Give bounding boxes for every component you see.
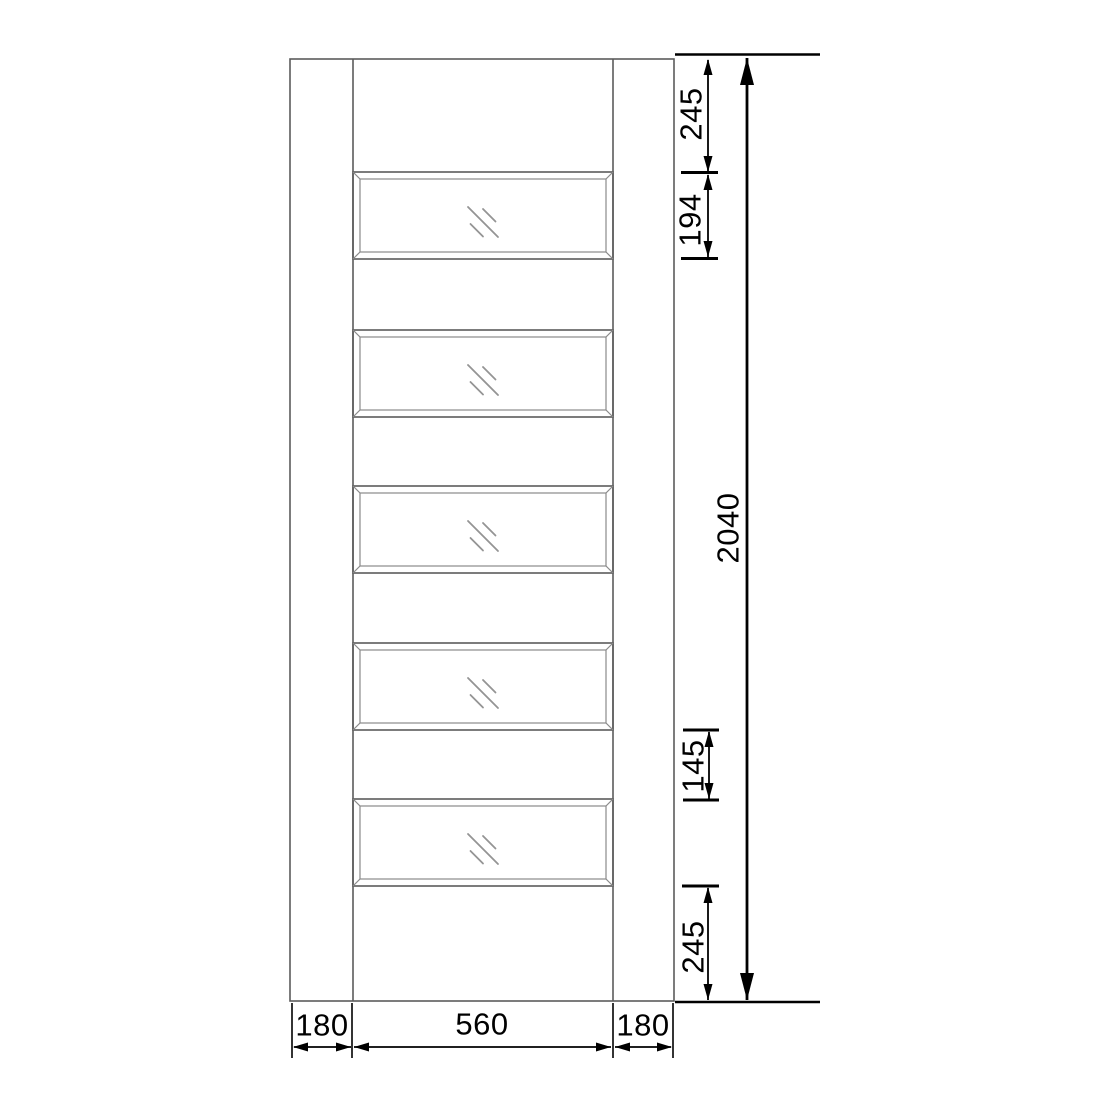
bevel-corner-icon	[606, 252, 613, 259]
panel-bevel-lines	[353, 172, 613, 259]
bevel-corner-icon	[606, 172, 613, 179]
dim-label-top-rail: 245	[676, 87, 707, 140]
arrow-up-icon	[740, 58, 754, 85]
arrow-left-icon	[354, 1043, 369, 1052]
panel-outer-frame	[353, 486, 613, 573]
bevel-corner-icon	[353, 566, 360, 573]
bevel-corner-icon	[353, 252, 360, 259]
arrow-right-icon	[336, 1043, 351, 1052]
glazing-mark-icon	[468, 521, 498, 551]
arrow-up-icon	[704, 59, 713, 75]
door-drawing-svg	[0, 0, 1100, 1100]
dim-label-mid-rail: 145	[678, 739, 709, 792]
panel-inner-frame	[360, 650, 606, 723]
glazed-panel-1	[353, 172, 613, 259]
glazed-panel-2	[353, 330, 613, 417]
bevel-corner-icon	[606, 410, 613, 417]
panel-bevel-lines	[353, 643, 613, 730]
panel-bevel-lines	[353, 486, 613, 573]
arrow-down-icon	[704, 984, 713, 1000]
dim-label-glazing-width: 560	[455, 1009, 508, 1040]
arrow-up-icon	[704, 174, 713, 190]
arrow-left-icon	[615, 1043, 630, 1052]
panel-outer-frame	[353, 799, 613, 886]
arrow-down-icon	[704, 156, 713, 172]
bevel-corner-icon	[353, 643, 360, 650]
panel-inner-frame	[360, 806, 606, 879]
dim-label-left-stile: 180	[295, 1010, 348, 1041]
bevel-corner-icon	[606, 486, 613, 493]
bevel-corner-icon	[606, 723, 613, 730]
bevel-corner-icon	[353, 172, 360, 179]
arrow-up-icon	[704, 887, 713, 903]
glazing-mark-icon	[468, 678, 498, 708]
panel-inner-frame	[360, 337, 606, 410]
arrow-down-icon	[740, 973, 754, 1000]
glazing-mark-icon	[468, 207, 498, 237]
panel-inner-frame	[360, 493, 606, 566]
glazing-mark-icon	[468, 834, 498, 864]
bevel-corner-icon	[353, 410, 360, 417]
glazing-mark-icon	[468, 365, 498, 395]
bevel-corner-icon	[606, 879, 613, 886]
glazed-panel-4	[353, 643, 613, 730]
arrow-left-icon	[293, 1043, 308, 1052]
panel-outer-frame	[353, 643, 613, 730]
bevel-corner-icon	[606, 643, 613, 650]
dim-label-bottom-rail: 245	[678, 920, 709, 973]
glazed-panel-3	[353, 486, 613, 573]
arrow-right-icon	[596, 1043, 611, 1052]
bevel-corner-icon	[606, 799, 613, 806]
door-outline-group	[290, 59, 674, 1001]
panel-inner-frame	[360, 179, 606, 252]
dim-label-door-height: 2040	[713, 493, 744, 564]
panel-outer-frame	[353, 172, 613, 259]
door-outer-edge	[290, 59, 674, 1001]
bevel-corner-icon	[353, 486, 360, 493]
bevel-corner-icon	[353, 799, 360, 806]
dim-label-panel-height: 194	[675, 193, 706, 246]
glazed-panel-5	[353, 799, 613, 886]
panel-bevel-lines	[353, 330, 613, 417]
panel-outer-frame	[353, 330, 613, 417]
bevel-corner-icon	[606, 566, 613, 573]
bevel-corner-icon	[353, 330, 360, 337]
door-dimension-diagram: 245 194 2040 145 245 180 560 180	[0, 0, 1100, 1100]
dim-label-right-stile: 180	[616, 1010, 669, 1041]
bevel-corner-icon	[606, 330, 613, 337]
arrow-right-icon	[657, 1043, 672, 1052]
panel-bevel-lines	[353, 799, 613, 886]
bevel-corner-icon	[353, 879, 360, 886]
bevel-corner-icon	[353, 723, 360, 730]
